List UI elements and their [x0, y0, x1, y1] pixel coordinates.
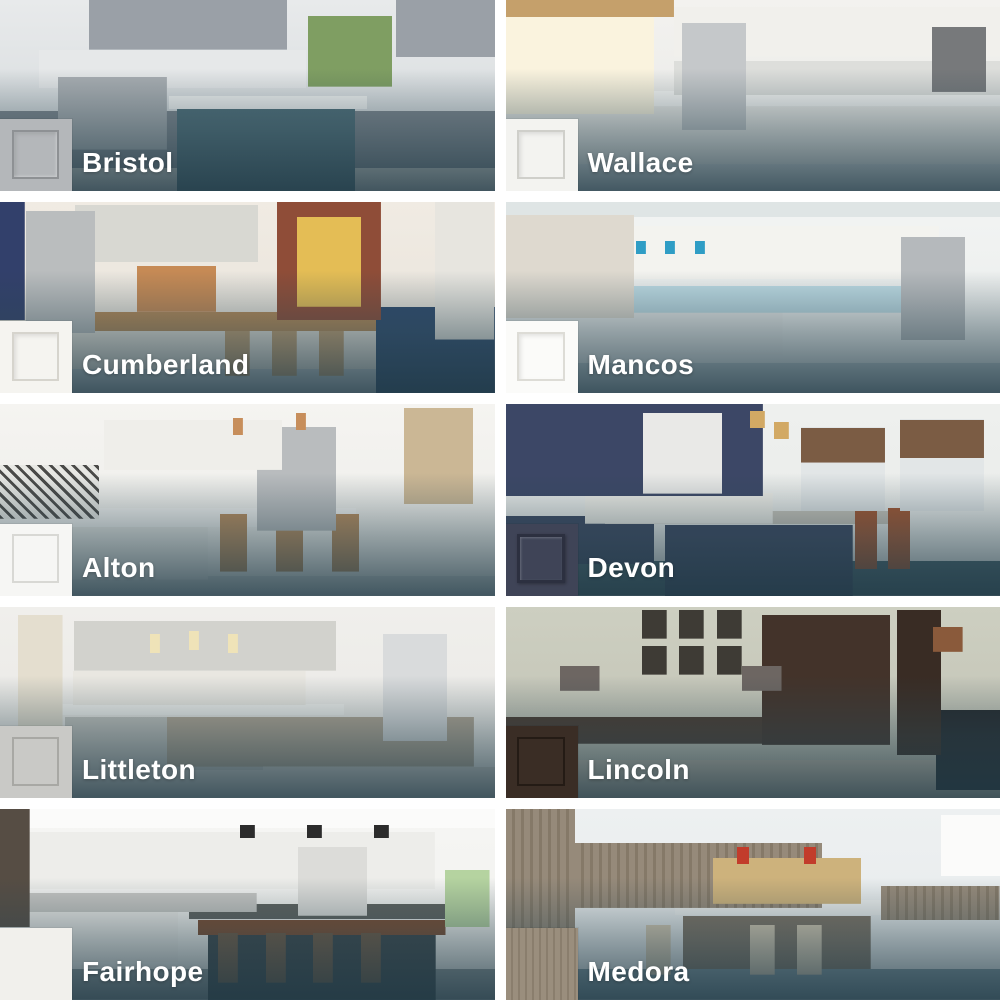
door-panel — [12, 534, 60, 583]
style-name: Alton — [82, 552, 156, 584]
cabinet-door-swatch — [0, 321, 72, 393]
gradient-overlay — [506, 607, 1000, 798]
cabinet-door-swatch — [506, 726, 578, 798]
style-card-bristol[interactable]: Bristol — [0, 0, 495, 191]
door-panel — [12, 737, 60, 786]
gradient-overlay — [506, 202, 1000, 393]
style-card-lincoln[interactable]: Lincoln — [506, 607, 1000, 798]
cabinet-door-swatch — [0, 119, 72, 191]
style-card-littleton[interactable]: Littleton — [0, 607, 495, 798]
kitchen-style-grid: Bristol Wallace Cumberland Mancos Alton … — [0, 0, 1000, 1000]
door-panel — [12, 130, 60, 179]
gradient-overlay — [0, 404, 495, 595]
cabinet-door-swatch — [506, 928, 578, 1000]
style-name: Mancos — [588, 349, 695, 381]
gradient-overlay — [0, 809, 495, 1000]
style-card-medora[interactable]: Medora — [506, 809, 1000, 1000]
door-panel — [517, 737, 565, 786]
gradient-overlay — [506, 809, 1000, 1000]
cabinet-door-swatch — [0, 726, 72, 798]
door-panel — [517, 534, 565, 583]
gradient-overlay — [0, 0, 495, 191]
style-name: Fairhope — [82, 956, 203, 988]
door-panel — [12, 332, 60, 381]
door-panel — [517, 130, 565, 179]
cabinet-door-swatch — [506, 524, 578, 596]
style-name: Wallace — [588, 147, 694, 179]
cabinet-door-swatch — [506, 321, 578, 393]
style-name: Bristol — [82, 147, 173, 179]
gradient-overlay — [506, 0, 1000, 191]
style-card-fairhope[interactable]: Fairhope — [0, 809, 495, 1000]
style-card-wallace[interactable]: Wallace — [506, 0, 1000, 191]
style-name: Cumberland — [82, 349, 249, 381]
style-card-devon[interactable]: Devon — [506, 404, 1000, 595]
style-name: Devon — [588, 552, 676, 584]
gradient-overlay — [0, 607, 495, 798]
style-card-cumberland[interactable]: Cumberland — [0, 202, 495, 393]
cabinet-door-swatch — [0, 928, 72, 1000]
style-name: Littleton — [82, 754, 196, 786]
style-name: Lincoln — [588, 754, 690, 786]
gradient-overlay — [506, 404, 1000, 595]
style-card-mancos[interactable]: Mancos — [506, 202, 1000, 393]
style-name: Medora — [588, 956, 690, 988]
cabinet-door-swatch — [506, 119, 578, 191]
style-card-alton[interactable]: Alton — [0, 404, 495, 595]
cabinet-door-swatch — [0, 524, 72, 596]
door-panel — [517, 332, 565, 381]
